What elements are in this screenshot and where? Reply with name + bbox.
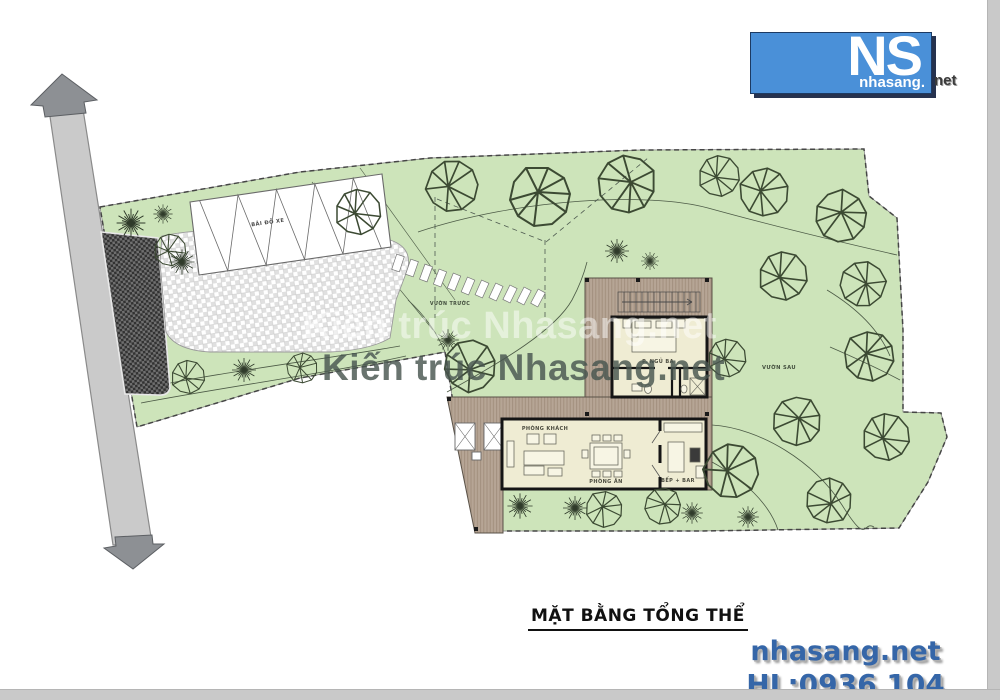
logo-brand-text: nhasang. [859,74,925,91]
back-garden-label: VƯỜN SAU [762,364,796,371]
contact-website: nhasang.net [718,636,973,667]
bedroom-block [612,317,707,397]
bedroom-label: P. NGỦ BA [642,357,674,365]
road-arrow-up-icon [31,74,97,117]
kitchen-label: BẾP + BAR [661,476,695,484]
logo-tld-text: net [934,72,957,89]
front-garden-label: VƯỜN TRƯỚC [430,300,470,307]
site-plan-drawing: BÃI ĐỖ XE [0,0,1000,700]
drawing-title: MẶT BẰNG TỔNG THỂ [528,606,748,631]
page-edge-bottom [0,689,1000,700]
site-plan-page: BÃI ĐỖ XE [0,0,1000,700]
living-room-label: PHÒNG KHÁCH [522,425,568,432]
page-edge-right [987,0,1000,700]
logo: NS nhasang. [750,32,932,94]
dining-room-label: PHÒNG ĂN [589,478,622,485]
